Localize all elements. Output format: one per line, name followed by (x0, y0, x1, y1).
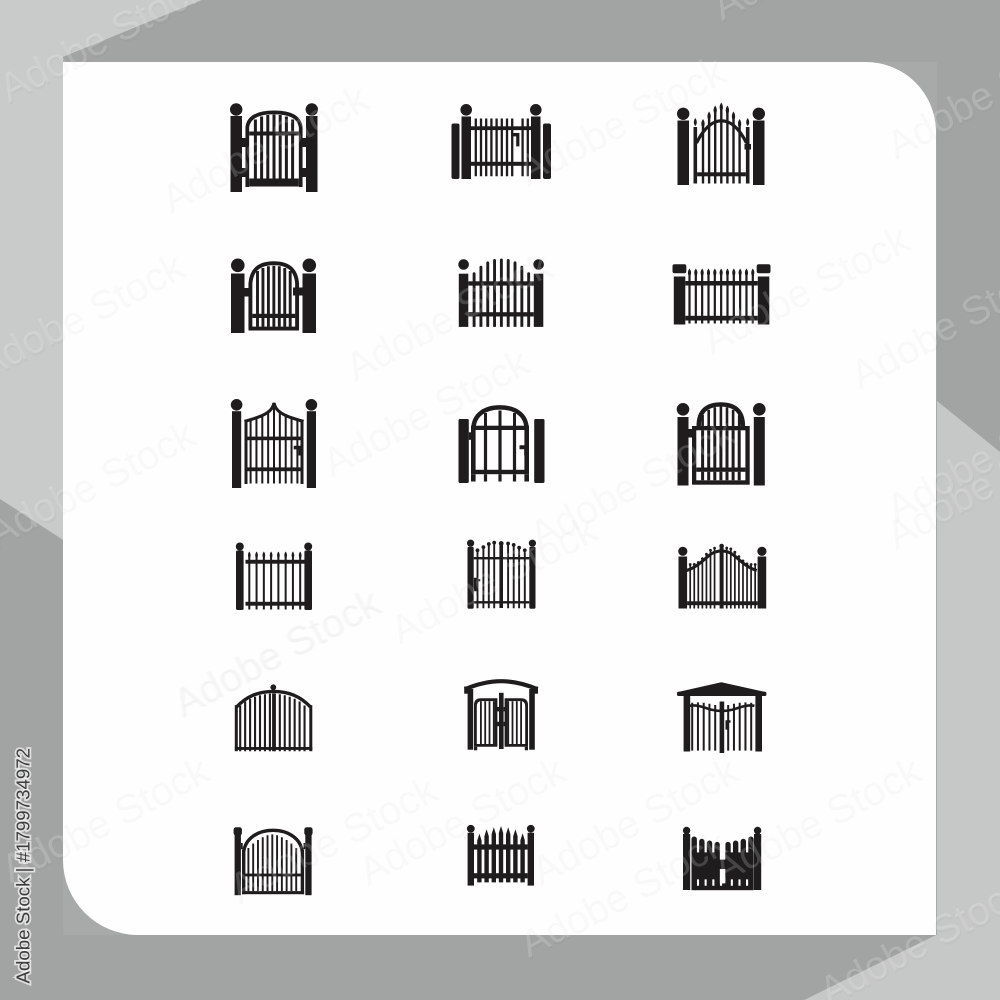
svg-text:Adobe Stock | #1799734972: Adobe Stock | #1799734972 (13, 748, 34, 984)
